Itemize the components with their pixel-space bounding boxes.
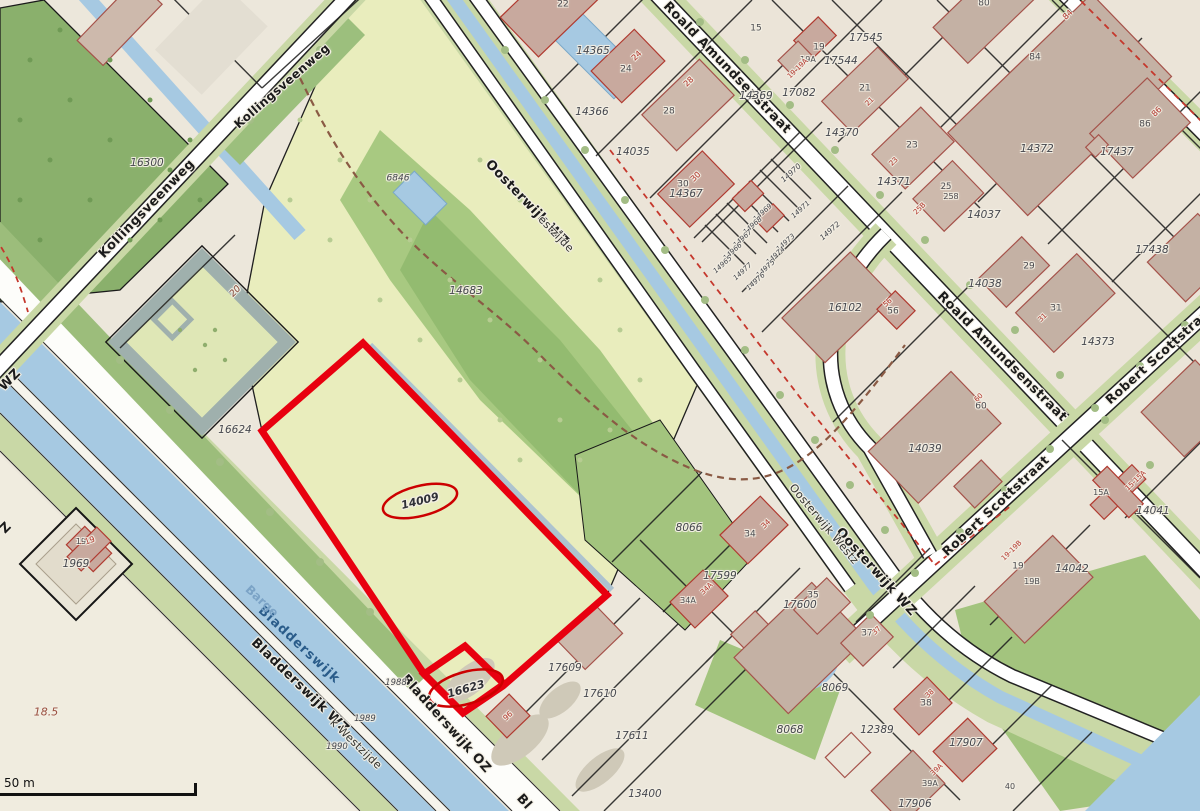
scale-bar: 50 m	[0, 783, 197, 796]
map-graphics	[0, 0, 1200, 811]
map-canvas[interactable]: KollingsveenwegKollingsveenwegOosterwijk…	[0, 0, 1200, 811]
scale-bar-label: 50 m	[4, 776, 35, 790]
